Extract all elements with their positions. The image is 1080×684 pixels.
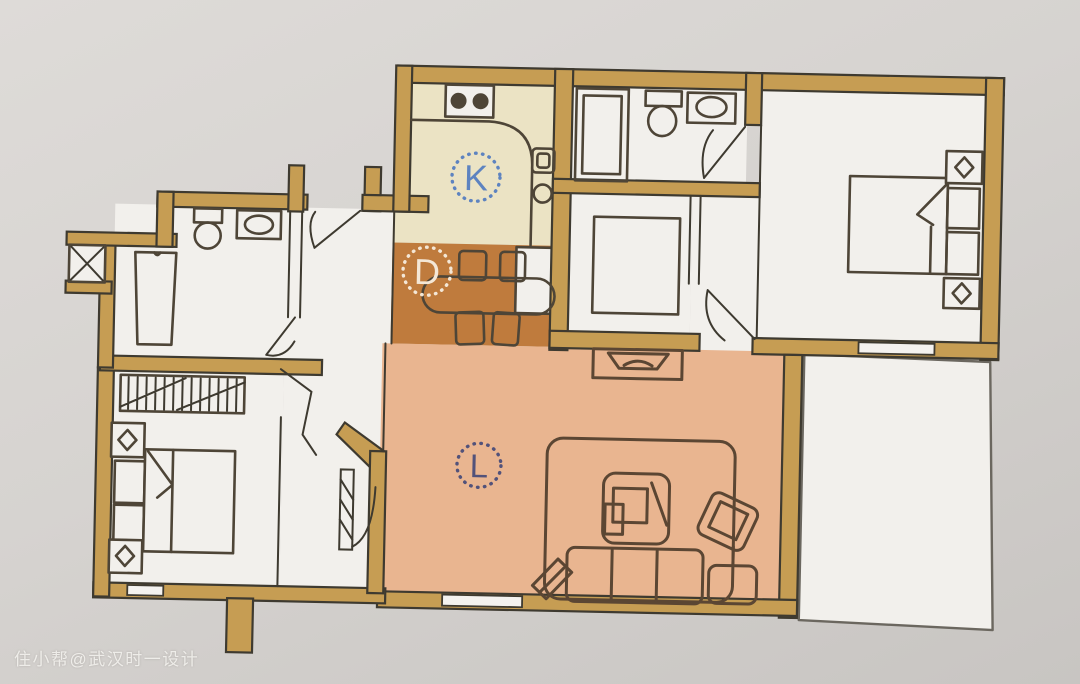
balcony [799, 354, 999, 630]
nightstand [946, 151, 983, 184]
south-wall-stub [226, 598, 253, 653]
nightstand [111, 423, 145, 458]
left-bedroom-window [127, 585, 163, 596]
bath-bedroom-divider-wall [100, 355, 322, 375]
nightstand [109, 540, 143, 574]
living-window [442, 595, 522, 608]
left-bathroom-corner-return [156, 192, 173, 247]
floor-plan: K D L [58, 59, 1004, 668]
right-bedroom-window [858, 342, 934, 355]
shaft-box [69, 245, 106, 283]
right-bedroom-west-wall-upper [745, 73, 762, 125]
floor-plan-photo: K D L 住小帮@武汉时一设计 [0, 0, 1080, 684]
kitchen-label: K [464, 157, 489, 198]
left-bathroom-floor [112, 204, 291, 364]
watermark: 住小帮@武汉时一设计 [14, 645, 199, 670]
left-bathroom-east-wall-upper [288, 165, 304, 211]
living-label: L [469, 447, 488, 484]
left-bathroom-north-wall [157, 192, 307, 210]
floor-plan-svg: K D L [0, 0, 1080, 684]
kitchen-west-wall [393, 66, 412, 212]
living-zone-floor [377, 343, 786, 601]
dining-label: D [414, 251, 441, 293]
